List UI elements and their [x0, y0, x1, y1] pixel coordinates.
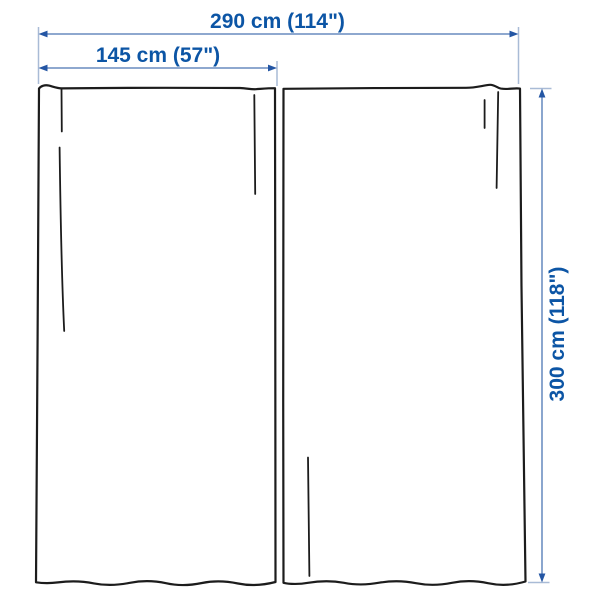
arrowhead-down-icon — [539, 574, 546, 583]
fold-line — [497, 92, 499, 188]
product-dimension-diagram: 290 cm (114") 145 cm (57") 300 cm (118") — [0, 0, 600, 600]
total-width-label: 290 cm (114") — [210, 10, 345, 33]
extension-lines — [39, 27, 552, 583]
total-width-dimension: 290 cm (114") — [39, 10, 519, 37]
arrowhead-right-icon — [268, 65, 277, 72]
fold-line — [254, 95, 255, 194]
right-curtain-panel — [283, 85, 525, 585]
fold-line — [308, 458, 309, 577]
left-curtain-panel — [36, 85, 276, 585]
arrowhead-up-icon — [539, 89, 546, 98]
panel-width-label: 145 cm (57") — [96, 44, 220, 67]
left-panel-outline — [36, 85, 276, 585]
dimension-diagram-svg: 290 cm (114") 145 cm (57") 300 cm (118") — [0, 0, 600, 600]
panel-width-dimension: 145 cm (57") — [39, 44, 278, 71]
fold-line — [60, 148, 65, 332]
arrowhead-right-icon — [510, 31, 519, 38]
right-panel-outline — [283, 85, 525, 585]
arrowhead-left-icon — [39, 31, 48, 38]
height-label: 300 cm (118") — [546, 267, 569, 402]
height-dimension: 300 cm (118") — [539, 89, 569, 583]
arrowhead-left-icon — [39, 65, 48, 72]
